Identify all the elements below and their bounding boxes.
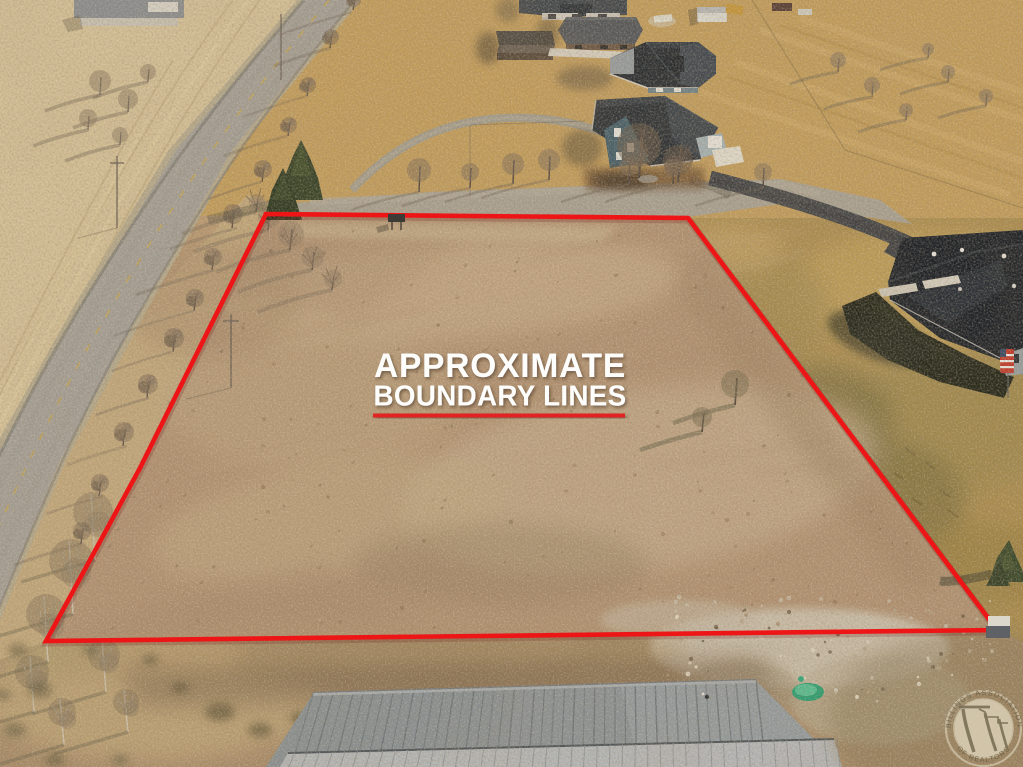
svg-text:BOUNDARY LINES: BOUNDARY LINES	[374, 381, 627, 413]
svg-text:APPROXIMATE: APPROXIMATE	[374, 347, 626, 385]
